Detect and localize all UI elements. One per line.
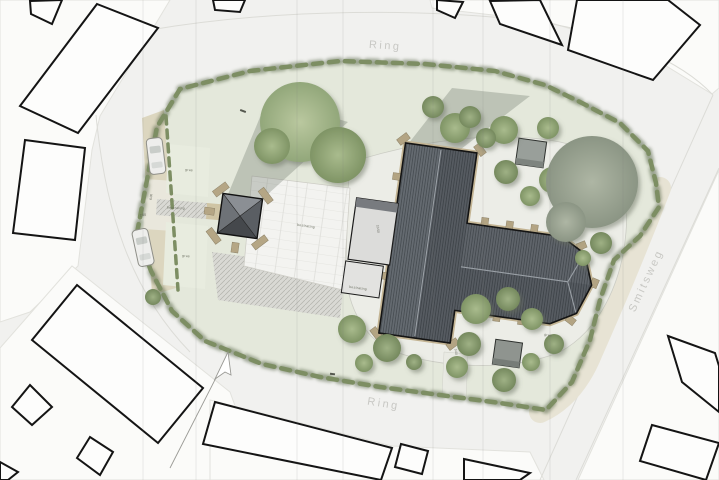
tree bbox=[575, 250, 591, 266]
tree bbox=[446, 356, 468, 378]
dimension-label: 5.00 bbox=[450, 313, 455, 320]
tree bbox=[476, 128, 496, 148]
tree bbox=[544, 334, 564, 354]
dimension-label: 6.00 bbox=[149, 193, 154, 200]
tree bbox=[521, 308, 543, 330]
tree bbox=[338, 315, 366, 343]
tree bbox=[406, 354, 422, 370]
tower-buttress bbox=[204, 207, 215, 215]
car-windshield bbox=[149, 145, 161, 153]
dimension-label: 3.00 bbox=[454, 349, 459, 356]
tree bbox=[457, 332, 481, 356]
grass-label: gras bbox=[185, 168, 193, 172]
tree bbox=[590, 232, 612, 254]
tree bbox=[254, 128, 290, 164]
tree bbox=[310, 127, 366, 183]
tree bbox=[355, 354, 373, 372]
tower-buttress bbox=[231, 242, 239, 253]
tree bbox=[461, 294, 491, 324]
street-label-ring-top: Ring bbox=[369, 39, 402, 53]
annex-lower bbox=[341, 261, 383, 298]
shed bbox=[515, 138, 546, 168]
tree bbox=[373, 334, 401, 362]
context-building bbox=[213, 0, 245, 12]
tree bbox=[494, 160, 518, 184]
tree bbox=[520, 186, 540, 206]
tree bbox=[546, 202, 586, 242]
tree bbox=[496, 287, 520, 311]
context-building bbox=[13, 140, 85, 240]
tree bbox=[145, 289, 161, 305]
shed bbox=[492, 339, 522, 368]
tree bbox=[522, 353, 540, 371]
tree bbox=[537, 117, 559, 139]
tree bbox=[492, 368, 516, 392]
tree bbox=[459, 106, 481, 128]
grass-label: gras bbox=[182, 254, 190, 258]
site-plan-canvas: 2.00 6.00 10.50 5.00 3.00 gras gras gras… bbox=[0, 0, 719, 480]
dimension-label: 2.00 bbox=[140, 213, 147, 218]
